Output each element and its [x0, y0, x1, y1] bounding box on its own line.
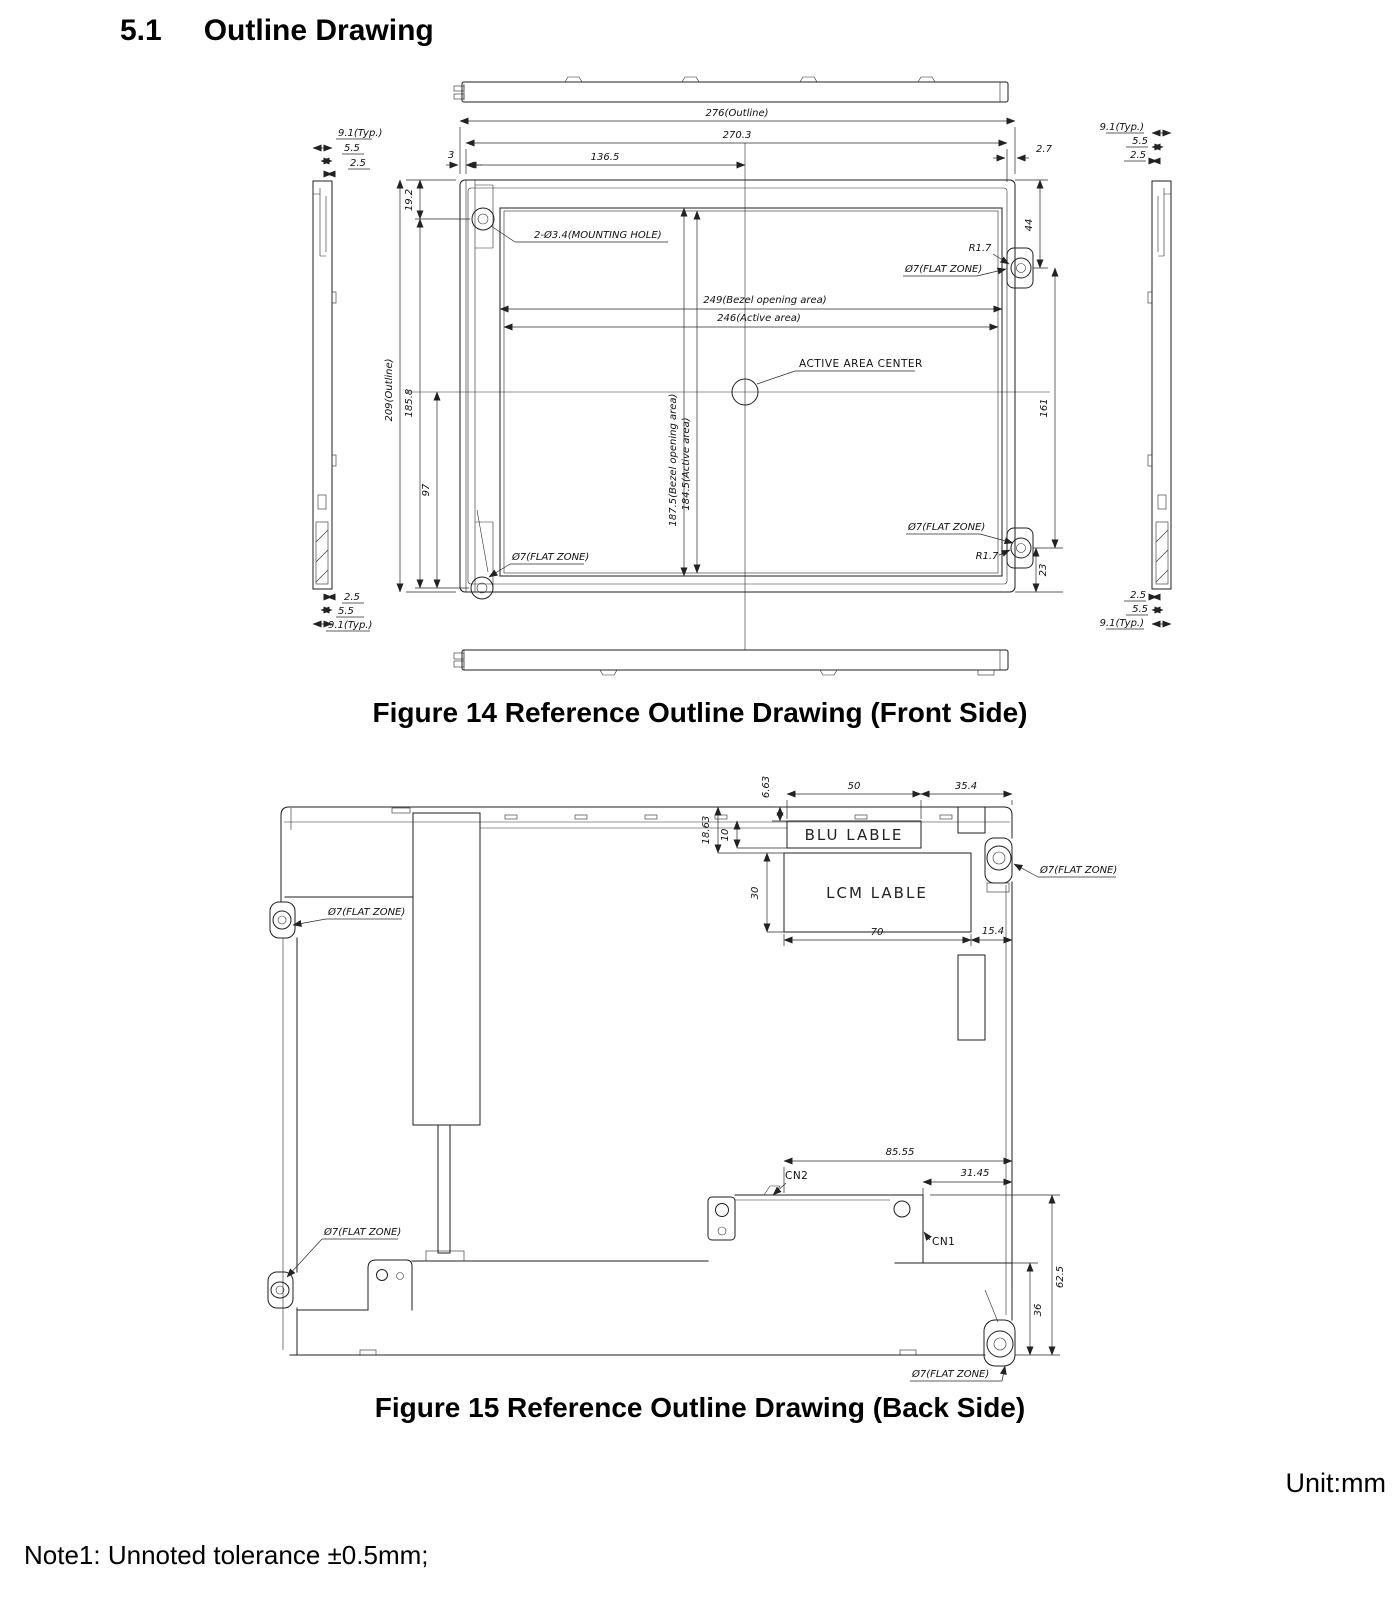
front-dimensions: 276(Outline) 270.3 136.5 3 2.7 209(Outli… [384, 108, 1063, 592]
dim-97: 97 [421, 483, 432, 496]
dim-85-55: 85.55 [886, 1147, 915, 1158]
dim-right-55-bot: 5.5 [1132, 604, 1148, 615]
label-flat-zone-ul-back: Ø7(FLAT ZONE) [327, 906, 405, 918]
label-mounting-hole: 2-Ø3.4(MOUNTING HOLE) [534, 229, 662, 241]
dim-right-91-top: 9.1(Typ.) [1100, 122, 1144, 133]
dim-left-55-bot: 5.5 [338, 606, 354, 617]
front-bottom-edge-view [454, 650, 1008, 675]
dim-left-55-top: 5.5 [344, 143, 360, 154]
dim-246-active: 246(Active area) [717, 313, 801, 324]
back-bottom-structure [297, 1186, 1012, 1310]
dim-50: 50 [848, 781, 861, 792]
label-active-area-center: ACTIVE AREA CENTER [799, 358, 923, 370]
back-dimensions: 50 35.4 6.63 18.63 10 30 70 15.4 85.55 [701, 776, 1066, 1355]
dim-19-2: 19.2 [404, 189, 415, 211]
dim-136-5: 136.5 [591, 152, 620, 163]
front-left-side-view [313, 181, 336, 589]
dim-184-5-active: 184.5(Active area) [681, 417, 692, 510]
figure14-caption: Figure 14 Reference Outline Drawing (Fro… [0, 697, 1400, 729]
front-callouts: 2-Ø3.4(MOUNTING HOLE) ACTIVE AREA CENTER… [489, 226, 1013, 577]
label-flat-zone-ll-back: Ø7(FLAT ZONE) [323, 1226, 401, 1238]
label-flat-zone-br-back: Ø7(FLAT ZONE) [911, 1368, 989, 1380]
dim-left-91-bot: 9.1(Typ.) [328, 620, 372, 631]
dim-249-bezel: 249(Bezel opening area) [703, 295, 826, 306]
dim-23: 23 [1038, 564, 1049, 577]
dim-6-63: 6.63 [761, 776, 772, 798]
dim-30: 30 [750, 887, 761, 900]
front-right-side-dims: 9.1(Typ.) 5.5 2.5 2.5 5.5 9.1(Typ.) [1100, 122, 1171, 629]
note1-text: Note1: Unnoted tolerance ±0.5mm; [24, 1540, 429, 1571]
dim-36: 36 [1033, 1304, 1044, 1317]
dim-3: 3 [448, 150, 454, 161]
section-title: Outline Drawing [204, 14, 434, 47]
dim-35-4: 35.4 [955, 781, 977, 792]
label-r17-top: R1.7 [969, 243, 992, 254]
dim-18-63: 18.63 [701, 816, 712, 845]
dim-62-5: 62.5 [1055, 1266, 1066, 1288]
front-outline-drawing: 9.1(Typ.) 5.5 2.5 2.5 5.5 9.1(Typ.) 9.1(… [260, 70, 1190, 700]
front-main-view [406, 143, 1050, 650]
dim-15-4: 15.4 [982, 926, 1004, 937]
label-cn2: CN2 [785, 1170, 808, 1182]
front-left-side-dims: 9.1(Typ.) 5.5 2.5 2.5 5.5 9.1(Typ.) [313, 128, 382, 631]
figure15-caption: Figure 15 Reference Outline Drawing (Bac… [0, 1392, 1400, 1424]
dim-31-45: 31.45 [961, 1168, 990, 1179]
label-flat-zone-br: Ø7(FLAT ZONE) [907, 521, 985, 533]
lcm-label: LCM LABLE [826, 884, 928, 902]
back-labels: BLU LABLE LCM LABLE [784, 821, 971, 932]
dim-left-25-top: 2.5 [350, 158, 366, 169]
datasheet-page: 5.1Outline Drawing [0, 0, 1400, 1604]
dim-left-25-bot: 2.5 [344, 592, 360, 603]
label-cn1: CN1 [932, 1236, 955, 1248]
blu-label: BLU LABLE [805, 826, 904, 844]
dim-right-55-top: 5.5 [1132, 136, 1148, 147]
dim-209-outline: 209(Outline) [384, 358, 395, 421]
dim-187-5-bezel: 187.5(Bezel opening area) [668, 394, 679, 527]
dim-right-25-top: 2.5 [1130, 150, 1146, 161]
section-heading: 5.1Outline Drawing [120, 14, 434, 48]
front-top-edge-view [454, 77, 1008, 102]
section-number: 5.1 [120, 14, 162, 47]
dim-2-7: 2.7 [1036, 144, 1053, 155]
dim-right-25-bot: 2.5 [1130, 590, 1146, 601]
label-flat-zone-tr: Ø7(FLAT ZONE) [904, 263, 982, 275]
dim-161: 161 [1039, 398, 1050, 417]
dim-276-outline: 276(Outline) [705, 108, 768, 119]
dim-270-3: 270.3 [723, 130, 752, 141]
dim-10: 10 [720, 829, 731, 842]
dim-70: 70 [871, 927, 884, 938]
front-right-side-view [1148, 181, 1171, 589]
back-outline-drawing: BLU LABLE LCM LABLE 50 35.4 6.63 18.63 1… [240, 745, 1120, 1395]
unit-label: Unit:mm [1286, 1468, 1387, 1499]
label-r17-bottom: R1.7 [976, 551, 999, 562]
dim-185-8: 185.8 [404, 389, 415, 418]
label-flat-zone-bl: Ø7(FLAT ZONE) [511, 551, 589, 563]
label-flat-zone-tr-back: Ø7(FLAT ZONE) [1039, 864, 1117, 876]
dim-44: 44 [1024, 219, 1035, 232]
dim-right-91-bot: 9.1(Typ.) [1100, 618, 1144, 629]
dim-left-91-top: 9.1(Typ.) [338, 128, 382, 139]
